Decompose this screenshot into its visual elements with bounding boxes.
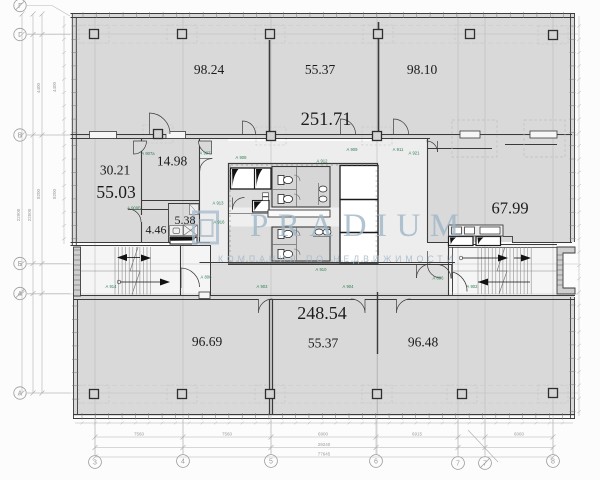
svg-text:А 806: А 806 <box>433 276 445 281</box>
svg-text:6915: 6915 <box>412 432 423 437</box>
svg-text:55.03: 55.03 <box>96 182 136 202</box>
svg-text:4400: 4400 <box>52 81 57 92</box>
svg-text:А 907: А 907 <box>200 151 212 156</box>
svg-text:А 806: А 806 <box>201 275 213 280</box>
svg-text:7560: 7560 <box>222 432 233 437</box>
svg-text:6900: 6900 <box>318 432 329 437</box>
svg-text:А 904: А 904 <box>343 284 355 289</box>
svg-text:22500: 22500 <box>27 208 32 221</box>
svg-text:29240: 29240 <box>318 442 331 447</box>
svg-text:55.37: 55.37 <box>308 336 339 351</box>
svg-text:4400: 4400 <box>36 82 41 93</box>
svg-text:А 909Б: А 909Б <box>127 206 141 211</box>
svg-text:А 911: А 911 <box>393 147 404 152</box>
svg-text:30.21: 30.21 <box>100 163 130 178</box>
svg-text:5.38: 5.38 <box>175 213 196 227</box>
svg-text:4.46: 4.46 <box>146 223 167 237</box>
svg-text:А 902: А 902 <box>467 284 479 289</box>
svg-text:А 916: А 916 <box>214 220 226 225</box>
svg-text:А 908: А 908 <box>236 155 248 160</box>
svg-text:6060: 6060 <box>514 432 525 437</box>
svg-text:А 909: А 909 <box>347 147 359 152</box>
svg-text:96.69: 96.69 <box>192 334 223 349</box>
svg-text:А 913: А 913 <box>213 201 225 206</box>
svg-text:А 910: А 910 <box>316 267 328 272</box>
svg-text:А 912: А 912 <box>317 159 329 164</box>
svg-text:А 921: А 921 <box>409 151 421 156</box>
svg-text:КОМПАНИЯ ПО НЕДВИЖИМОСТИ: КОМПАНИЯ ПО НЕДВИЖИМОСТИ <box>218 254 457 264</box>
svg-text:55.37: 55.37 <box>305 62 336 77</box>
svg-text:98.24: 98.24 <box>194 62 225 77</box>
svg-text:8: 8 <box>551 459 555 466</box>
svg-text:8200: 8200 <box>36 188 41 199</box>
svg-text:248.54: 248.54 <box>297 303 347 323</box>
svg-text:22900: 22900 <box>16 208 21 221</box>
svg-text:77645: 77645 <box>318 452 331 457</box>
svg-text:7: 7 <box>483 461 487 468</box>
svg-text:5: 5 <box>269 459 273 466</box>
svg-text:7: 7 <box>456 461 460 468</box>
svg-text:14.98: 14.98 <box>157 154 188 169</box>
svg-text:67.99: 67.99 <box>491 199 528 218</box>
svg-text:А 914: А 914 <box>106 284 118 289</box>
svg-text:8200: 8200 <box>52 188 57 199</box>
svg-text:3: 3 <box>93 460 97 467</box>
svg-text:Г: Г <box>18 3 22 10</box>
svg-text:А 907а: А 907а <box>141 151 155 156</box>
svg-text:Г: Г <box>18 32 22 39</box>
svg-text:7560: 7560 <box>134 432 145 437</box>
svg-text:А 903: А 903 <box>257 284 269 289</box>
svg-text:251.71: 251.71 <box>301 110 352 130</box>
svg-text:4: 4 <box>181 459 185 466</box>
svg-text:96.48: 96.48 <box>408 335 439 350</box>
svg-text:PRADIUM: PRADIUM <box>250 208 469 244</box>
svg-text:6: 6 <box>374 459 378 466</box>
svg-text:98.10: 98.10 <box>407 62 438 77</box>
